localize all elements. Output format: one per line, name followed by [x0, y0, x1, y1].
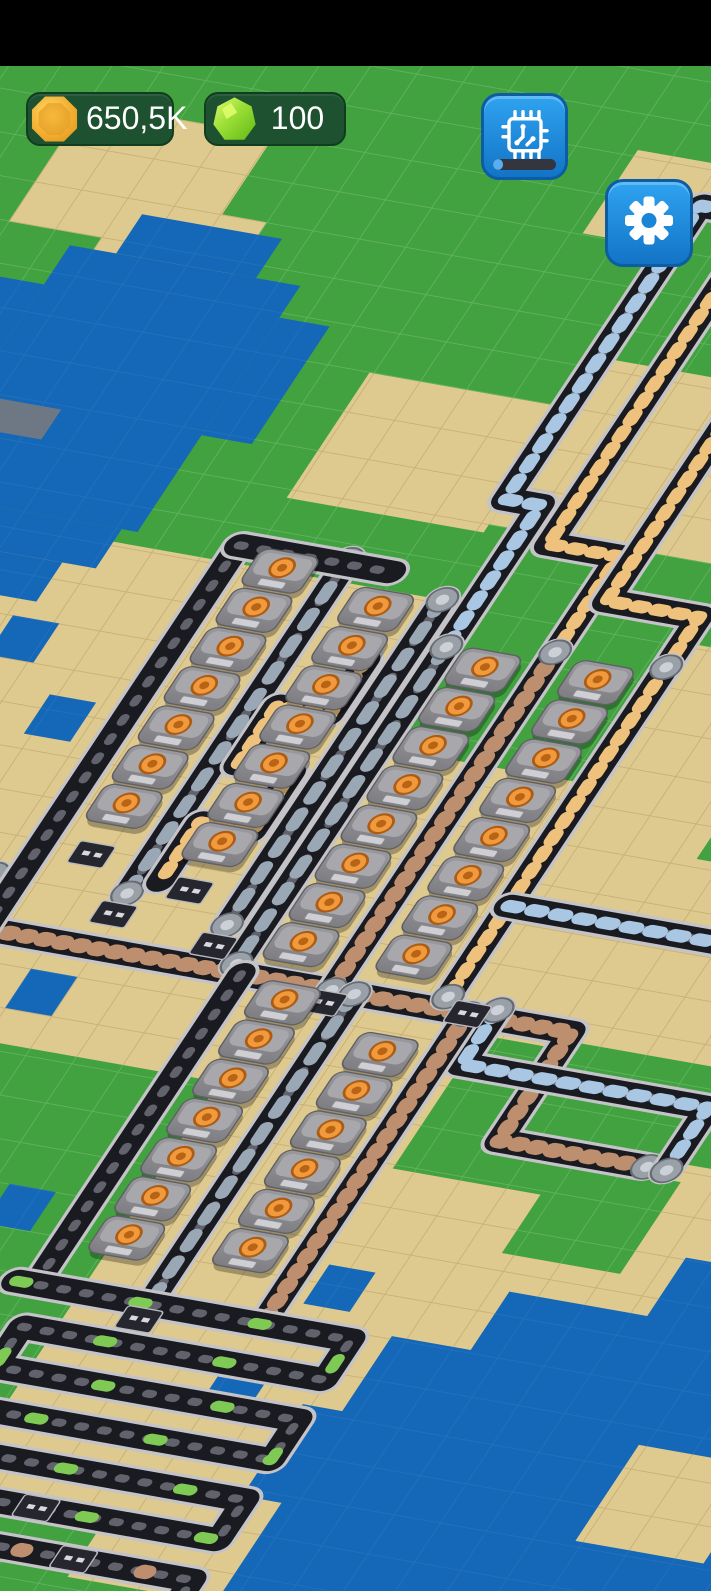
coin-counter[interactable]: 650,5K — [26, 92, 174, 146]
gem-value: 100 — [263, 102, 338, 136]
research-button[interactable] — [481, 93, 568, 180]
chip-icon — [497, 106, 553, 162]
gem-counter[interactable]: 100 — [204, 92, 346, 146]
research-progress-bar — [493, 159, 556, 170]
coin-icon — [31, 96, 78, 143]
status-bar — [0, 0, 711, 66]
game-screen: 650,5K 100 — [0, 0, 711, 1591]
settings-button[interactable] — [605, 179, 693, 267]
coin-value: 650,5K — [78, 102, 201, 136]
research-progress-fill — [493, 159, 503, 170]
gem-icon — [212, 97, 257, 142]
gear-icon — [618, 190, 680, 252]
